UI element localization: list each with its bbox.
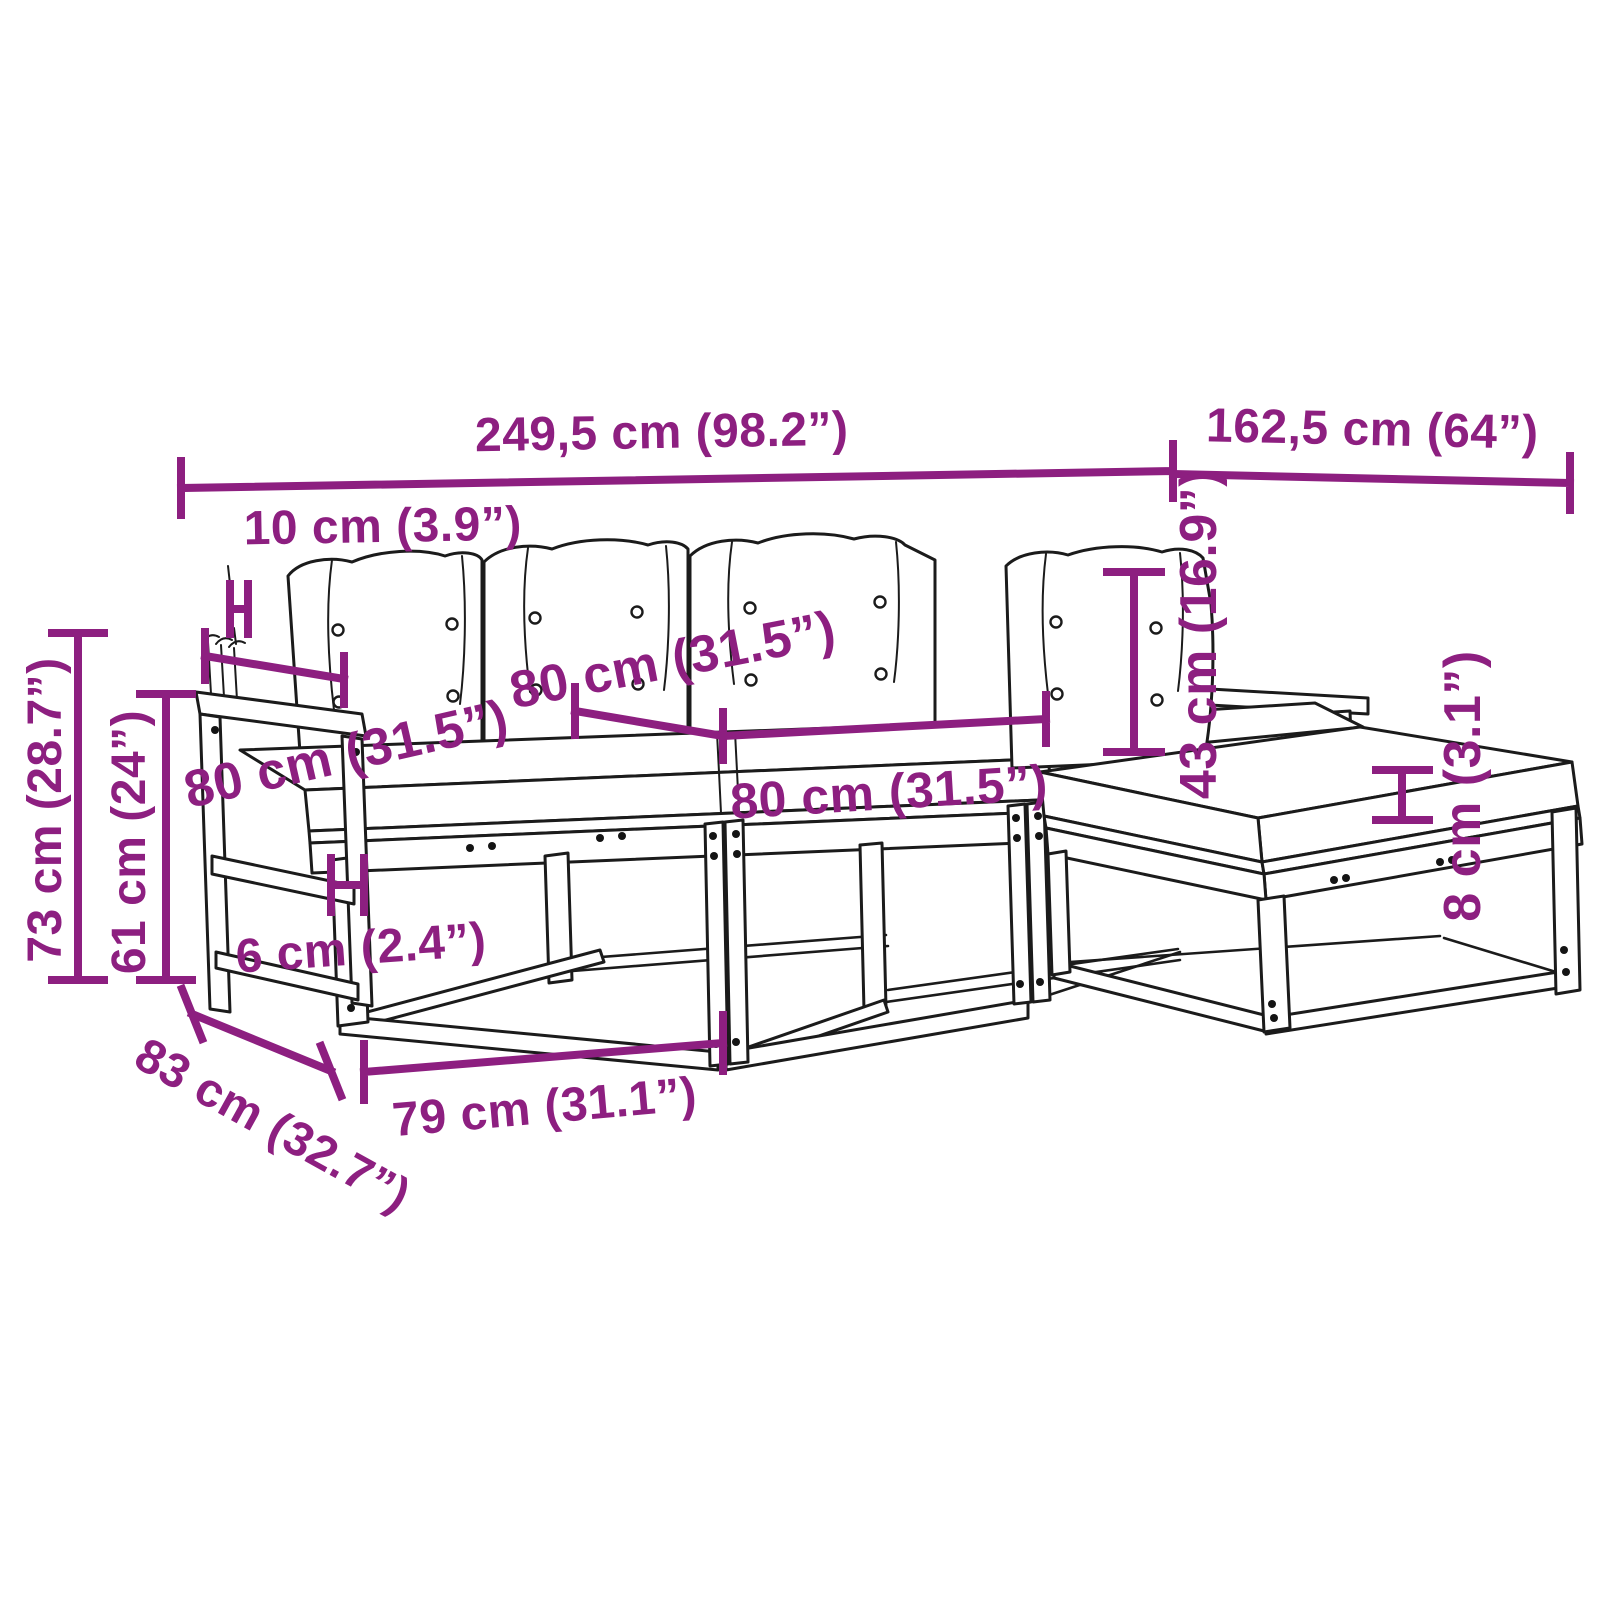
dim-frame-thickness-label: 6 cm (2.4”) bbox=[234, 913, 488, 983]
dim-armrest-height: 61 cm (24”) bbox=[103, 694, 192, 980]
dim-armrest-height-label: 61 cm (24”) bbox=[103, 710, 156, 974]
dim-chaise-depth-label: 162,5 cm (64”) bbox=[1206, 399, 1540, 460]
sofa-dimension-diagram: 249,5 cm (98.2”) 162,5 cm (64”) 10 cm (3… bbox=[0, 0, 1600, 1600]
dim-total-height-label: 73 cm (28.7”) bbox=[19, 657, 72, 962]
dim-back-offset-label: 10 cm (3.9”) bbox=[243, 498, 522, 556]
dim-cushion-thickness-label: 8 cm (3.1”) bbox=[1434, 650, 1492, 921]
dim-overall-width: 249,5 cm (98.2”) bbox=[181, 403, 1173, 515]
dim-total-height: 73 cm (28.7”) bbox=[19, 633, 104, 980]
dim-module-width-label: 79 cm (31.1”) bbox=[390, 1068, 699, 1147]
backrest-slats bbox=[203, 566, 245, 700]
dim-backrest-height-label: 43 cm (16.9”) bbox=[1170, 469, 1228, 799]
ottoman bbox=[1040, 727, 1582, 1034]
dim-side-depth-label: 83 cm (32.7”) bbox=[126, 1028, 419, 1222]
dim-overall-width-label: 249,5 cm (98.2”) bbox=[475, 403, 849, 463]
diagram-canvas: 249,5 cm (98.2”) 162,5 cm (64”) 10 cm (3… bbox=[0, 0, 1600, 1600]
dim-chaise-depth: 162,5 cm (64”) bbox=[1173, 399, 1570, 510]
